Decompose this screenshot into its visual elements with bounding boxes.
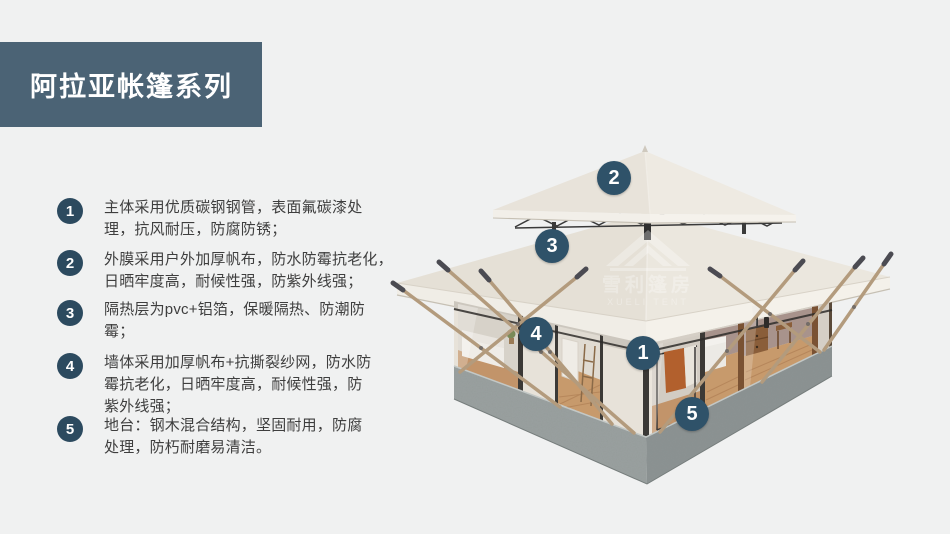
tent-marker-3: 3 <box>535 229 569 263</box>
tent-marker-5: 5 <box>675 397 709 431</box>
feature-number-badge: 3 <box>57 300 83 326</box>
slide: 雪利篷房 XUELI TENT 阿拉亚帐篷系列 1 主体采用优质碳钢钢管，表面氟… <box>0 0 950 534</box>
feature-number-badge: 1 <box>57 198 83 224</box>
feature-item-5: 5 地台：钢木混合结构，坚固耐用，防腐 处理，防朽耐磨易清洁。 <box>57 415 414 459</box>
feature-item-2: 2 外膜采用户外加厚帆布，防水防霉抗老化， 日晒牢度高，耐候性强，防紫外线强； <box>57 249 414 293</box>
tent-marker-4: 4 <box>519 317 553 351</box>
feature-text: 外膜采用户外加厚帆布，防水防霉抗老化， 日晒牢度高，耐候性强，防紫外线强； <box>104 249 414 293</box>
feature-item-4: 4 墙体采用加厚帆布+抗撕裂纱网，防水防 霉抗老化，日晒牢度高，耐候性强，防 紫… <box>57 352 414 418</box>
feature-text: 地台：钢木混合结构，坚固耐用，防腐 处理，防朽耐磨易清洁。 <box>104 415 414 459</box>
feature-text: 墙体采用加厚帆布+抗撕裂纱网，防水防 霉抗老化，日晒牢度高，耐候性强，防 紫外线… <box>104 352 414 418</box>
feature-item-1: 1 主体采用优质碳钢钢管，表面氟碳漆处 理，抗风耐压，防腐防锈； <box>57 197 414 241</box>
feature-number-badge: 5 <box>57 416 83 442</box>
watermark-cn: 雪利篷房 <box>602 273 694 296</box>
page-title: 阿拉亚帐篷系列 <box>30 65 233 104</box>
feature-number-badge: 2 <box>57 250 83 276</box>
tent-marker-1: 1 <box>626 336 660 370</box>
feature-text: 主体采用优质碳钢钢管，表面氟碳漆处 理，抗风耐压，防腐防锈； <box>104 197 414 241</box>
feature-item-3: 3 隔热层为pvc+铝箔，保暖隔热、防潮防 霉； <box>57 299 414 343</box>
title-banner: 阿拉亚帐篷系列 <box>0 42 262 127</box>
feature-text: 隔热层为pvc+铝箔，保暖隔热、防潮防 霉； <box>104 299 414 343</box>
watermark-en: XUELI TENT <box>607 297 689 307</box>
tent-marker-2: 2 <box>597 161 631 195</box>
top-roof <box>493 145 796 223</box>
feature-number-badge: 4 <box>57 353 83 379</box>
